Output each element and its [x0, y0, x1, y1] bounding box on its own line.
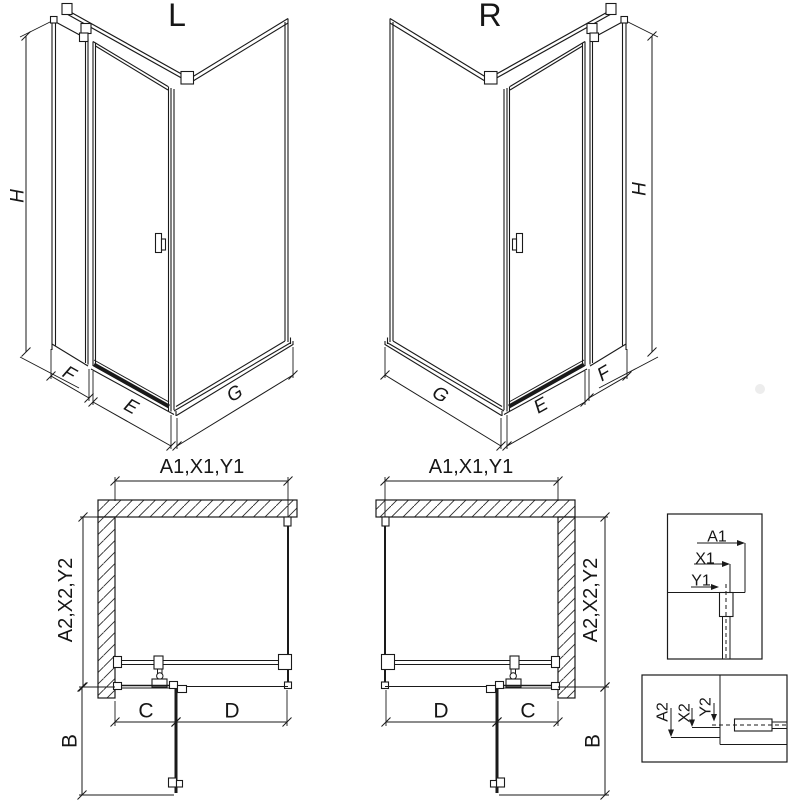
detail-width-y1-label: Y1 — [691, 573, 711, 590]
iso-right-dim-e-label: E — [530, 394, 552, 419]
plan-left-dim-b-label: B — [59, 734, 82, 748]
plan-left-dim-c-label: C — [138, 700, 153, 723]
iso-left-dim-f-label: F — [59, 362, 81, 387]
plan-left-depth-dim-label: A2,X2,Y2 — [55, 558, 77, 643]
detail-width-x1-label: X1 — [695, 551, 715, 568]
plan-right-dim-c-label: C — [520, 700, 535, 723]
plan-right-width-dim-label: A1,X1,Y1 — [429, 456, 514, 478]
detail-depth-y2-label: Y2 — [698, 697, 715, 717]
plan-left-dim-d-label: D — [224, 700, 239, 723]
iso-left-dim-e-label: E — [120, 395, 142, 420]
plan-left-view — [78, 477, 298, 800]
iso-right-title: R — [478, 0, 501, 33]
detail-depth-x2-label: X2 — [677, 703, 694, 723]
plan-right-dim-d-label: D — [433, 700, 448, 723]
plan-right-depth-dim-label: A2,X2,Y2 — [580, 558, 602, 643]
iso-left-view — [20, 4, 298, 451]
iso-left-dim-h-label: H — [8, 189, 29, 203]
iso-left-title: L — [168, 0, 186, 33]
iso-right-dim-f-label: F — [594, 361, 616, 386]
plan-right-view — [376, 477, 610, 800]
plan-left-width-dim-label: A1,X1,Y1 — [160, 456, 245, 478]
plan-right-dim-b-label: B — [582, 734, 605, 748]
drawing-canvas: L H F E G R H G E F A1,X1,Y1 A2,X2,Y2 C … — [0, 0, 800, 800]
detail-depth-a2-label: A2 — [655, 702, 672, 722]
shower-enclosure-technical-drawing: L H F E G R H G E F A1,X1,Y1 A2,X2,Y2 C … — [0, 0, 800, 800]
detail-width-a1-label: A1 — [707, 529, 727, 546]
watermark-smudge — [755, 384, 765, 394]
iso-right-view — [381, 4, 659, 451]
iso-right-dim-h-label: H — [630, 182, 651, 196]
